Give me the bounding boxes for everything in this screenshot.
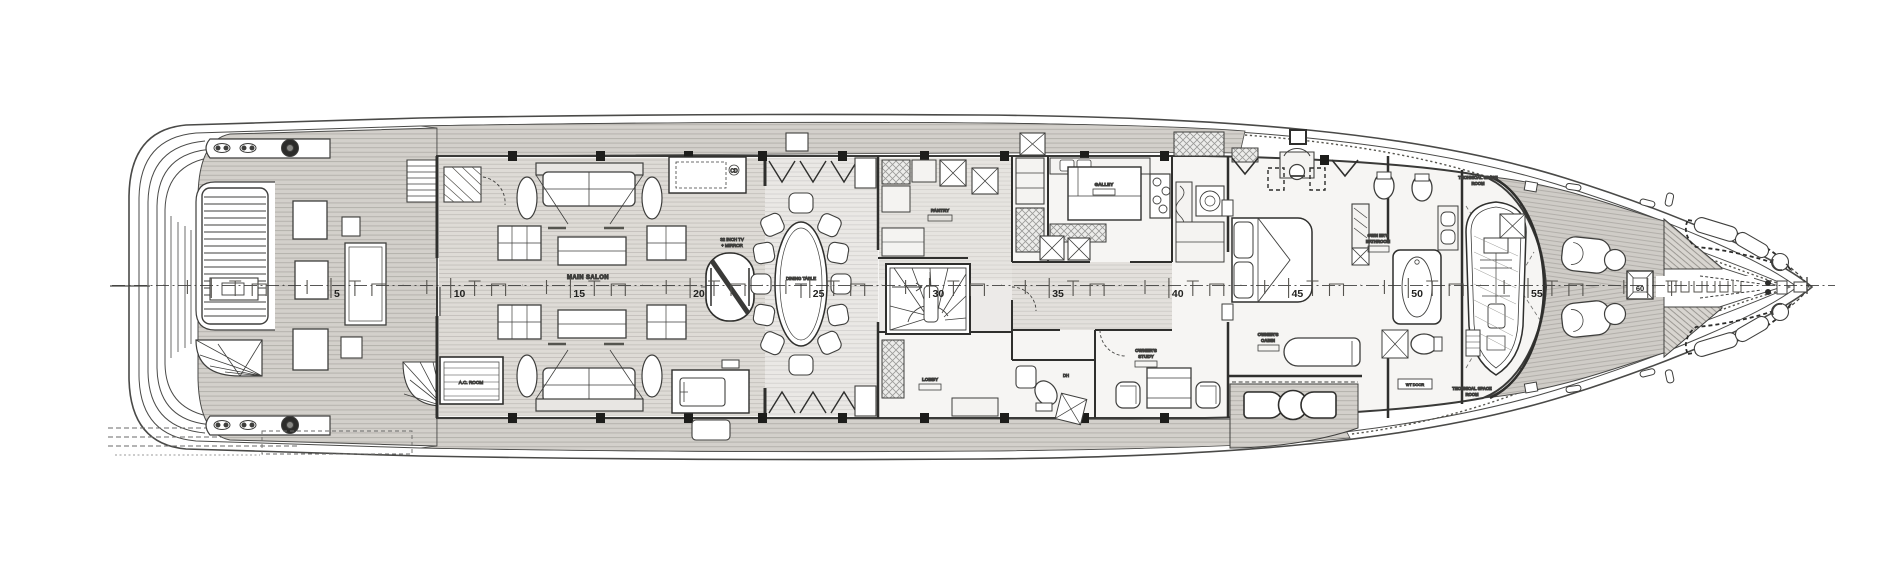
svg-text:PANTRY: PANTRY — [931, 208, 949, 213]
svg-text:10: 10 — [454, 288, 466, 300]
svg-text:45: 45 — [1292, 288, 1304, 300]
svg-text:CD: CD — [730, 169, 738, 175]
svg-text:WT DOOR: WT DOOR — [1406, 383, 1425, 387]
svg-text:OWN ER'S: OWN ER'S — [1367, 233, 1388, 238]
svg-text:GALLEY: GALLEY — [1095, 182, 1114, 187]
svg-text:CABIN: CABIN — [1261, 338, 1275, 343]
svg-text:STUDY: STUDY — [1138, 354, 1154, 359]
svg-text:OWNER'S: OWNER'S — [1135, 348, 1157, 353]
svg-text:50: 50 — [1411, 288, 1423, 300]
svg-text:55: 55 — [1531, 288, 1543, 300]
svg-text:5: 5 — [334, 288, 340, 300]
svg-text:20: 20 — [693, 288, 705, 300]
svg-text:30: 30 — [933, 288, 945, 300]
svg-text:32 INCH TV: 32 INCH TV — [720, 237, 744, 242]
svg-text:A.C. ROOM: A.C. ROOM — [459, 380, 484, 385]
svg-text:DINING TABLE: DINING TABLE — [786, 276, 816, 281]
svg-text:OWNER'S: OWNER'S — [1258, 332, 1279, 337]
svg-text:DH: DH — [1063, 373, 1069, 378]
svg-text:40: 40 — [1172, 288, 1184, 300]
svg-text:15: 15 — [573, 288, 585, 300]
svg-text:MAIN SALON: MAIN SALON — [567, 275, 609, 281]
svg-text:25: 25 — [813, 288, 825, 300]
svg-text:ROOM: ROOM — [1465, 392, 1479, 397]
svg-text:35: 35 — [1052, 288, 1064, 300]
svg-text:TECHNICAL SPACE: TECHNICAL SPACE — [1458, 175, 1498, 180]
svg-text:BATHROOM: BATHROOM — [1366, 239, 1391, 244]
svg-text:LOBBY: LOBBY — [922, 377, 938, 382]
svg-text:ROOM: ROOM — [1471, 181, 1485, 186]
svg-text:+ MIRROR: + MIRROR — [721, 243, 743, 248]
svg-text:TECHNICAL SPACE: TECHNICAL SPACE — [1452, 386, 1492, 391]
